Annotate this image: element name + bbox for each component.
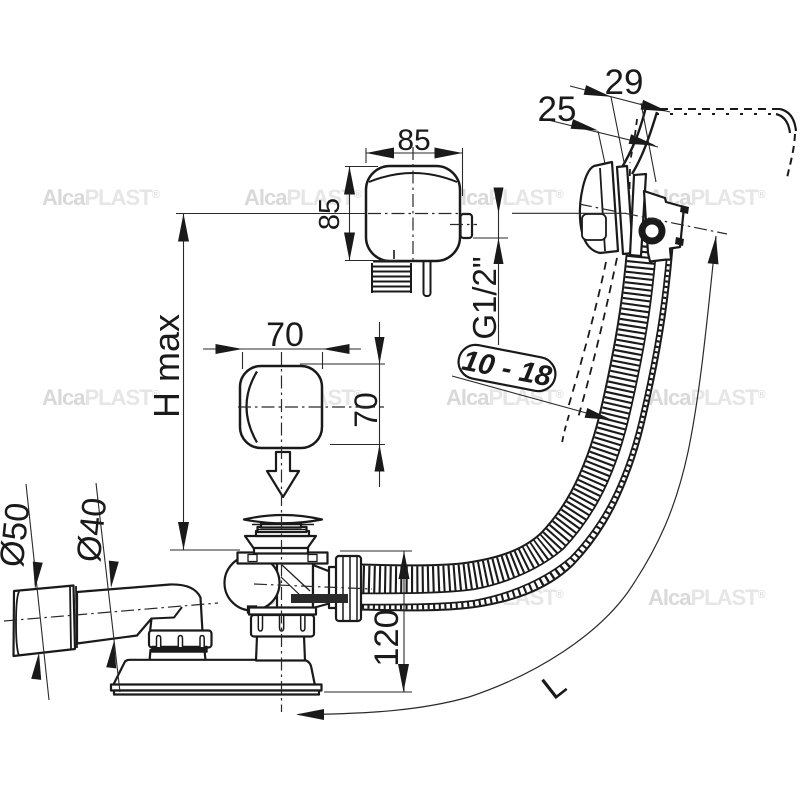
svg-text:H max: H max: [146, 314, 187, 418]
svg-text:25: 25: [538, 90, 577, 129]
svg-text:AlcaPLAST®: AlcaPLAST®: [42, 385, 160, 410]
svg-text:29: 29: [605, 63, 644, 102]
svg-text:70: 70: [348, 392, 384, 428]
svg-text:70: 70: [266, 316, 304, 354]
svg-text:AlcaPLAST®: AlcaPLAST®: [648, 385, 766, 410]
svg-text:120: 120: [368, 609, 406, 667]
svg-text:AlcaPLAST®: AlcaPLAST®: [42, 185, 160, 210]
svg-text:G1/2": G1/2": [466, 256, 503, 339]
svg-text:AlcaPLAST®: AlcaPLAST®: [648, 585, 766, 610]
svg-text:Ø40: Ø40: [70, 496, 115, 564]
svg-text:AlcaPLAST®: AlcaPLAST®: [446, 185, 564, 210]
svg-text:85: 85: [397, 124, 430, 157]
